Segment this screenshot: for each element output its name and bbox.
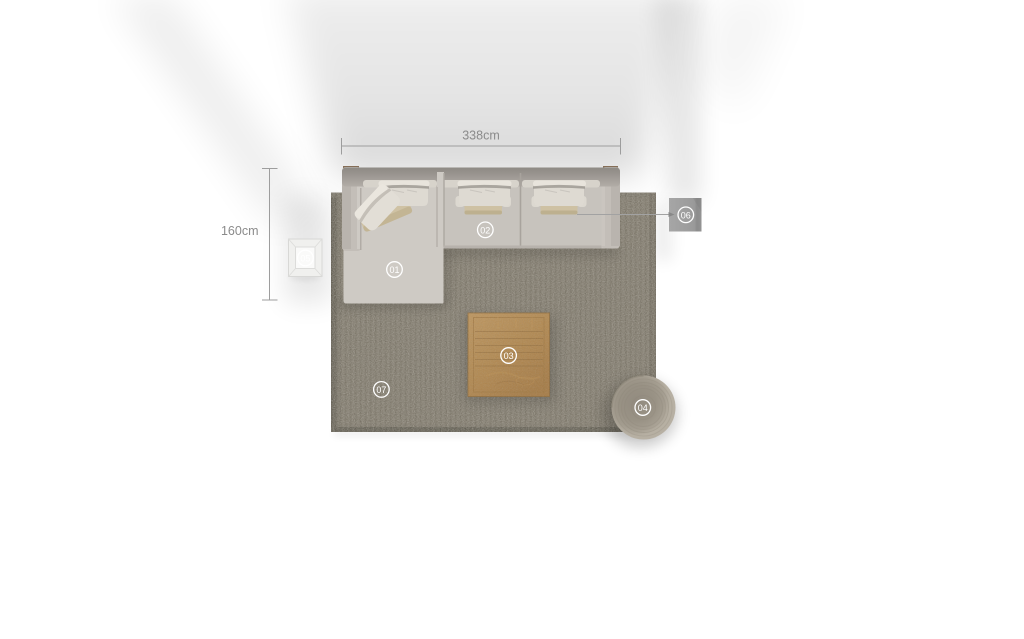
svg-text:160cm: 160cm [221,224,259,238]
svg-text:01: 01 [389,265,399,275]
svg-text:338cm: 338cm [462,129,500,143]
svg-text:03: 03 [504,351,514,361]
svg-text:04: 04 [638,403,648,413]
svg-text:02: 02 [480,225,490,235]
svg-text:07: 07 [376,385,386,395]
svg-text:06: 06 [681,210,691,220]
svg-text:05: 05 [300,254,310,264]
